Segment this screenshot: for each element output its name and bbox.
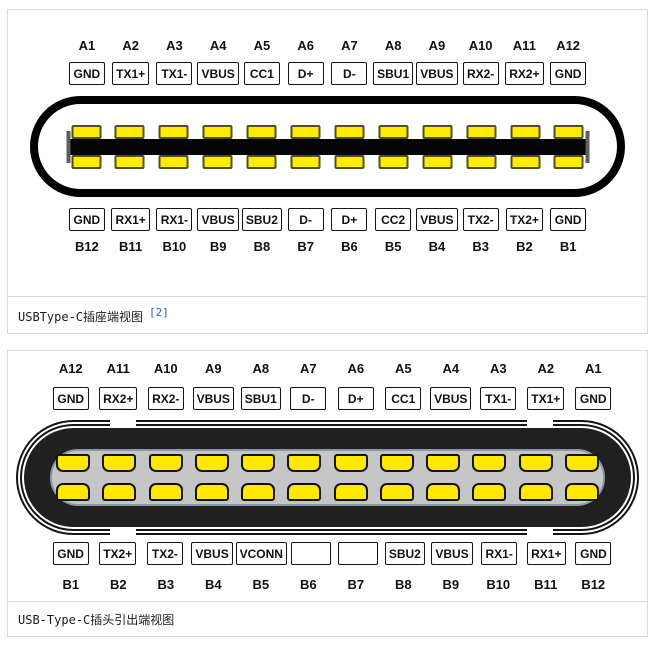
pin-number-cell: B8 <box>380 577 428 592</box>
pin-signal-box: VBUS <box>197 62 238 85</box>
pin-signal-cell: GND <box>65 208 109 231</box>
pin-number-cell: B7 <box>284 239 328 254</box>
pin-signal-cell: VBUS <box>188 542 235 565</box>
plug-body <box>24 428 631 527</box>
pin-number-cell: A2 <box>109 38 153 53</box>
pin-number-label: A12 <box>59 361 83 376</box>
contact-pad-top <box>241 454 275 472</box>
contact-pin-column <box>466 125 496 169</box>
contact-pad-top <box>102 454 136 472</box>
pin-number-cell: B9 <box>427 577 475 592</box>
pin-signal-cell: VBUS <box>190 387 238 410</box>
pin-signal-box: GND <box>69 62 105 85</box>
pin-number-cell: B12 <box>570 577 618 592</box>
receptacle-tongue <box>69 125 586 169</box>
contact-pad-bottom <box>378 155 408 169</box>
pin-number-label: B9 <box>442 577 459 592</box>
pin-number-cell: A11 <box>95 361 143 376</box>
pin-signal-cell: RX1+ <box>523 542 570 565</box>
pin-signal-cell: TX1- <box>475 387 523 410</box>
pin-signal-box: VBUS <box>197 208 238 231</box>
pin-signal-cell: RX1+ <box>109 208 153 231</box>
contact-pad-top <box>203 125 233 139</box>
pin-signal-cell <box>287 542 334 565</box>
latch-notch <box>527 527 553 535</box>
pin-number-label: A6 <box>297 38 314 53</box>
contact-pin-column <box>247 125 277 169</box>
contact-pin-column <box>554 125 584 169</box>
pin-number-cell: B10 <box>153 239 197 254</box>
pin-number-cell: A2 <box>522 361 570 376</box>
contact-pad-top <box>334 125 364 139</box>
pin-signal-cell: CC1 <box>240 62 284 85</box>
pin-number-label: A1 <box>79 38 96 53</box>
pin-signal-cell: D- <box>284 208 328 231</box>
contact-pad-top <box>159 125 189 139</box>
contact-pad-top <box>287 454 321 472</box>
pin-number-label: B10 <box>486 577 510 592</box>
contact-pin-column <box>56 454 90 501</box>
pin-signal-cell: VCONN <box>236 542 287 565</box>
pin-number-cell: B1 <box>546 239 590 254</box>
pin-number-label: B12 <box>581 577 605 592</box>
pin-signal-cell: VBUS <box>428 542 475 565</box>
pin-number-label: B2 <box>516 239 533 254</box>
contact-pin-column <box>195 454 229 501</box>
pin-number-cell: A1 <box>570 361 618 376</box>
pin-number-label: A11 <box>513 38 536 53</box>
contact-pad-bottom <box>334 155 364 169</box>
contact-pad-bottom <box>334 483 368 501</box>
contact-pad-bottom <box>241 483 275 501</box>
pin-signal-box: SBU1 <box>373 62 413 85</box>
pin-signal-cell: SBU1 <box>371 62 415 85</box>
pin-signal-box-empty <box>338 542 378 565</box>
pin-signal-box: VBUS <box>193 387 234 410</box>
pin-signal-box: TX2- <box>147 542 183 565</box>
pin-signal-cell: GND <box>546 62 590 85</box>
pin-number-label: B3 <box>472 239 489 254</box>
pin-signal-box: VCONN <box>236 542 287 565</box>
pin-number-cell: A6 <box>284 38 328 53</box>
pin-number-label: A12 <box>556 38 580 53</box>
contact-pad-bottom <box>472 483 506 501</box>
pin-number-cell: A8 <box>237 361 285 376</box>
pin-signal-cell: VBUS <box>196 62 240 85</box>
pin-signal-box: RX2+ <box>505 62 543 85</box>
contact-pad-top <box>519 454 553 472</box>
contact-pin-column <box>115 125 145 169</box>
pin-signal-box: GND <box>575 387 611 410</box>
pin-signal-box: TX1+ <box>527 387 564 410</box>
contact-pin-column <box>334 125 364 169</box>
contact-pad-bottom <box>466 155 496 169</box>
contact-pad-top <box>466 125 496 139</box>
pin-number-cell: A6 <box>332 361 380 376</box>
pin-signal-cell: D+ <box>284 62 328 85</box>
contact-pin-column <box>380 454 414 501</box>
pin-number-label: B7 <box>347 577 364 592</box>
contact-pin-column <box>378 125 408 169</box>
pin-signal-box: TX1- <box>156 62 192 85</box>
pin-signal-box: CC1 <box>244 62 280 85</box>
contact-pin-column <box>71 125 101 169</box>
pin-number-cell: B6 <box>285 577 333 592</box>
contact-pin-column <box>102 454 136 501</box>
pin-signal-box: RX1- <box>156 208 192 231</box>
contact-pin-column <box>241 454 275 501</box>
pin-signal-cell: TX2+ <box>94 542 141 565</box>
pin-number-cell: A10 <box>459 38 503 53</box>
pin-number-cell: A10 <box>142 361 190 376</box>
contact-pin-column <box>203 125 233 169</box>
pin-number-label: A3 <box>490 361 507 376</box>
pin-number-label: B5 <box>385 239 402 254</box>
pin-signal-row-bottom: GNDTX2+TX2-VBUSVCONNSBU2VBUSRX1-RX1+GND <box>47 542 617 565</box>
contact-pad-bottom <box>519 483 553 501</box>
contact-pin-column <box>287 454 321 501</box>
contact-pin-column <box>472 454 506 501</box>
latch-notch <box>110 420 136 428</box>
pin-number-cell: A7 <box>285 361 333 376</box>
contact-pad-top <box>378 125 408 139</box>
pin-signal-row-bottom: GNDRX1+RX1-VBUSSBU2D-D+CC2VBUSTX2-TX2+GN… <box>65 208 590 231</box>
receptacle-drawing <box>30 96 625 197</box>
pin-number-label: B8 <box>395 577 412 592</box>
contact-pin-column <box>159 125 189 169</box>
contact-pin-column <box>426 454 460 501</box>
contact-pad-bottom <box>510 155 540 169</box>
pin-number-cell: B10 <box>475 577 523 592</box>
pin-number-cell: B2 <box>95 577 143 592</box>
pin-number-cell: B9 <box>196 239 240 254</box>
pin-number-cell: B6 <box>328 239 372 254</box>
pin-number-cell: A5 <box>380 361 428 376</box>
pin-signal-cell: VBUS <box>427 387 475 410</box>
pin-signal-cell: TX2- <box>459 208 503 231</box>
pin-signal-box-empty <box>291 542 331 565</box>
pin-signal-box: VBUS <box>430 387 471 410</box>
pin-number-cell: B4 <box>415 239 459 254</box>
contact-pad-bottom <box>149 483 183 501</box>
pin-number-label: A5 <box>254 38 271 53</box>
contact-pad-bottom <box>554 155 584 169</box>
caption-text: USB-Type-C插头引出端视图 <box>18 613 174 627</box>
contact-pad-bottom <box>291 155 321 169</box>
contact-pad-top <box>510 125 540 139</box>
contact-pad-top <box>291 125 321 139</box>
pin-signal-row-top: GNDTX1+TX1-VBUSCC1D+D-SBU1VBUSRX2-RX2+GN… <box>65 62 590 85</box>
caption-text: USBType-C插座端视图 <box>18 310 143 324</box>
contact-pad-bottom <box>426 483 460 501</box>
pin-signal-cell: VBUS <box>415 208 459 231</box>
pin-number-label: B3 <box>157 577 174 592</box>
pin-signal-cell: TX1- <box>153 62 197 85</box>
contact-pad-bottom <box>565 483 599 501</box>
contact-pad-bottom <box>115 155 145 169</box>
contact-pad-top <box>195 454 229 472</box>
pin-number-label: A10 <box>469 38 493 53</box>
pin-number-label: B11 <box>534 577 557 592</box>
pin-number-row-top: A12A11A10A9A8A7A6A5A4A3A2A1 <box>47 361 617 376</box>
pin-signal-cell: TX2- <box>141 542 188 565</box>
pin-number-cell: B8 <box>240 239 284 254</box>
pin-signal-box: SBU1 <box>241 387 281 410</box>
pin-number-cell: A4 <box>196 38 240 53</box>
pin-number-label: B1 <box>560 239 577 254</box>
figure-caption: USBType-C插座端视图[2] <box>8 296 647 333</box>
pin-number-cell: A9 <box>190 361 238 376</box>
pin-number-cell: B1 <box>47 577 95 592</box>
pin-number-label: A7 <box>300 361 317 376</box>
pin-number-label: A6 <box>347 361 364 376</box>
pin-number-label: B12 <box>75 239 99 254</box>
pin-number-label: A8 <box>385 38 402 53</box>
pin-signal-box: D+ <box>331 208 367 231</box>
pin-number-cell: A5 <box>240 38 284 53</box>
pin-signal-box: TX2- <box>463 208 499 231</box>
pin-signal-box: VBUS <box>416 62 457 85</box>
pin-number-label: B10 <box>162 239 186 254</box>
pin-number-label: A4 <box>210 38 227 53</box>
pin-signal-cell: TX1+ <box>109 62 153 85</box>
pin-signal-cell: D- <box>285 387 333 410</box>
contact-pad-bottom <box>159 155 189 169</box>
contact-pad-top <box>554 125 584 139</box>
pin-signal-cell: VBUS <box>196 208 240 231</box>
contact-pad-bottom <box>203 155 233 169</box>
pin-signal-box: RX1+ <box>527 542 565 565</box>
contact-pin-column <box>334 454 368 501</box>
contact-pad-top <box>149 454 183 472</box>
pin-signal-box: SBU2 <box>242 208 282 231</box>
plug-cavity <box>50 449 605 506</box>
pin-number-label: A8 <box>252 361 269 376</box>
pin-signal-box: D- <box>288 208 324 231</box>
pin-number-cell: B11 <box>522 577 570 592</box>
pin-signal-box: SBU2 <box>385 542 425 565</box>
contact-pad-top <box>426 454 460 472</box>
contact-pad-bottom <box>195 483 229 501</box>
pin-signal-cell: D+ <box>328 208 372 231</box>
pin-number-cell: A11 <box>503 38 547 53</box>
pin-signal-cell: SBU1 <box>237 387 285 410</box>
pin-signal-box: GND <box>53 542 89 565</box>
pin-number-label: B8 <box>254 239 271 254</box>
pin-signal-cell: TX1+ <box>522 387 570 410</box>
pin-number-label: B11 <box>119 239 142 254</box>
pin-number-label: B5 <box>252 577 269 592</box>
contact-pad-top <box>56 454 90 472</box>
pin-signal-cell: CC2 <box>371 208 415 231</box>
contact-pad-top <box>115 125 145 139</box>
pin-signal-box: CC1 <box>385 387 421 410</box>
plug-drawing <box>16 420 639 535</box>
pin-signal-box: TX1+ <box>112 62 149 85</box>
pin-number-cell: A7 <box>328 38 372 53</box>
pin-signal-cell: GND <box>47 542 94 565</box>
contact-pad-bottom <box>247 155 277 169</box>
pin-number-label: A11 <box>107 361 130 376</box>
contact-pin-column <box>291 125 321 169</box>
pin-number-label: B2 <box>110 577 127 592</box>
latch-notch <box>110 527 136 535</box>
contact-pad-top <box>247 125 277 139</box>
contact-pin-column <box>565 454 599 501</box>
contact-pin-column <box>422 125 452 169</box>
pin-number-cell: A12 <box>47 361 95 376</box>
pin-number-label: A3 <box>166 38 183 53</box>
pin-signal-cell: D- <box>328 62 372 85</box>
figure-caption: USB-Type-C插头引出端视图 <box>8 601 647 636</box>
pin-number-cell: A9 <box>415 38 459 53</box>
pin-number-label: B9 <box>210 239 227 254</box>
pin-signal-cell: GND <box>65 62 109 85</box>
contact-pad-top <box>71 125 101 139</box>
pin-signal-box: RX2- <box>463 62 499 85</box>
contact-pad-bottom <box>56 483 90 501</box>
pin-number-label: B4 <box>429 239 446 254</box>
pin-signal-cell: GND <box>570 387 618 410</box>
figure-card-receptacle: A1A2A3A4A5A6A7A8A9A10A11A12 GNDTX1+TX1-V… <box>7 9 648 334</box>
pin-signal-box: RX1+ <box>111 208 149 231</box>
contact-pad-bottom <box>422 155 452 169</box>
pin-signal-box: VBUS <box>431 542 472 565</box>
pin-signal-cell: RX1- <box>153 208 197 231</box>
pin-number-label: A7 <box>341 38 358 53</box>
contact-pad-top <box>472 454 506 472</box>
pin-signal-box: TX2+ <box>506 208 543 231</box>
plug-contact-pads <box>56 454 599 501</box>
pin-signal-cell <box>334 542 381 565</box>
pin-signal-cell: RX2+ <box>503 62 547 85</box>
pin-signal-box: VBUS <box>416 208 457 231</box>
pin-number-cell: B12 <box>65 239 109 254</box>
pin-signal-box: GND <box>550 208 586 231</box>
pin-signal-box: D+ <box>288 62 324 85</box>
pin-signal-box: CC2 <box>375 208 411 231</box>
pin-signal-cell: SBU2 <box>240 208 284 231</box>
pin-number-cell: B4 <box>190 577 238 592</box>
pin-number-label: B6 <box>300 577 317 592</box>
pin-signal-box: RX2- <box>148 387 184 410</box>
citation-link[interactable]: [2] <box>149 306 169 319</box>
pin-number-cell: B3 <box>142 577 190 592</box>
pin-signal-box: D- <box>331 62 367 85</box>
pin-number-label: A10 <box>154 361 178 376</box>
receptacle-contact-pads <box>71 125 584 169</box>
pin-signal-box: D+ <box>338 387 374 410</box>
pin-number-cell: B11 <box>109 239 153 254</box>
pin-number-label: A4 <box>442 361 459 376</box>
pin-signal-box: GND <box>69 208 105 231</box>
pin-signal-box: GND <box>575 542 611 565</box>
pin-number-row-bottom: B1B2B3B4B5B6B7B8B9B10B11B12 <box>47 577 617 592</box>
pin-signal-box: D- <box>290 387 326 410</box>
pin-number-row-top: A1A2A3A4A5A6A7A8A9A10A11A12 <box>65 38 590 53</box>
contact-pin-column <box>149 454 183 501</box>
pin-signal-cell: D+ <box>332 387 380 410</box>
contact-pin-column <box>519 454 553 501</box>
pin-number-label: A1 <box>585 361 602 376</box>
pin-signal-cell: GND <box>570 542 617 565</box>
pin-number-label: A2 <box>537 361 554 376</box>
pin-signal-cell: RX2+ <box>95 387 143 410</box>
contact-pad-bottom <box>71 155 101 169</box>
pin-number-label: B6 <box>341 239 358 254</box>
figure-card-plug: A12A11A10A9A8A7A6A5A4A3A2A1 GNDRX2+RX2-V… <box>7 350 648 637</box>
contact-pad-top <box>565 454 599 472</box>
pin-number-cell: A1 <box>65 38 109 53</box>
pin-number-cell: A12 <box>546 38 590 53</box>
pin-signal-cell: VBUS <box>415 62 459 85</box>
pin-signal-cell: CC1 <box>380 387 428 410</box>
pin-number-cell: A4 <box>427 361 475 376</box>
pin-signal-cell: RX1- <box>476 542 523 565</box>
pin-signal-cell: SBU2 <box>381 542 428 565</box>
contact-pin-column <box>510 125 540 169</box>
pin-signal-box: RX2+ <box>99 387 137 410</box>
pin-signal-box: RX1- <box>481 542 517 565</box>
pin-signal-cell: RX2- <box>459 62 503 85</box>
pin-number-label: A5 <box>395 361 412 376</box>
contact-pad-bottom <box>287 483 321 501</box>
pin-number-label: B1 <box>62 577 79 592</box>
contact-pad-top <box>334 454 368 472</box>
pin-signal-box: TX2+ <box>99 542 136 565</box>
pin-number-label: A9 <box>205 361 222 376</box>
pin-signal-box: VBUS <box>191 542 232 565</box>
pin-number-cell: B2 <box>503 239 547 254</box>
pin-signal-box: GND <box>550 62 586 85</box>
pin-number-cell: A8 <box>371 38 415 53</box>
contact-pad-top <box>380 454 414 472</box>
latch-notch <box>527 420 553 428</box>
pin-number-row-bottom: B12B11B10B9B8B7B6B5B4B3B2B1 <box>65 239 590 254</box>
pin-signal-cell: RX2- <box>142 387 190 410</box>
pin-number-label: A2 <box>122 38 139 53</box>
pin-number-label: A9 <box>429 38 446 53</box>
pin-number-cell: B7 <box>332 577 380 592</box>
pin-number-cell: B5 <box>237 577 285 592</box>
pin-number-cell: B3 <box>459 239 503 254</box>
pin-signal-cell: GND <box>47 387 95 410</box>
pin-signal-row-top: GNDRX2+RX2-VBUSSBU1D-D+CC1VBUSTX1-TX1+GN… <box>47 387 617 410</box>
contact-pad-top <box>422 125 452 139</box>
pin-signal-cell: TX2+ <box>503 208 547 231</box>
pin-signal-box: TX1- <box>480 387 516 410</box>
pin-signal-box: GND <box>53 387 89 410</box>
pin-signal-cell: GND <box>546 208 590 231</box>
contact-pad-bottom <box>380 483 414 501</box>
pin-number-label: B7 <box>297 239 314 254</box>
contact-pad-bottom <box>102 483 136 501</box>
pin-number-label: B4 <box>205 577 222 592</box>
pin-number-cell: B5 <box>371 239 415 254</box>
pin-number-cell: A3 <box>153 38 197 53</box>
pin-number-cell: A3 <box>475 361 523 376</box>
